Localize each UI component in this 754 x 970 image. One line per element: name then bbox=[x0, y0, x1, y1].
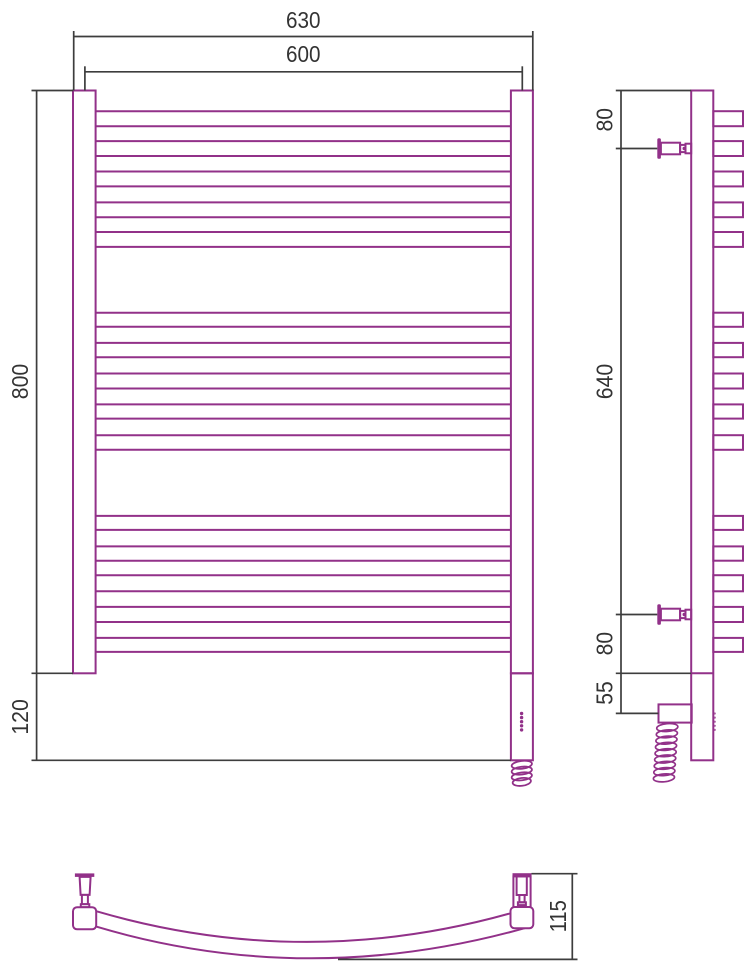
svg-text:640: 640 bbox=[592, 364, 618, 400]
svg-text:600: 600 bbox=[286, 41, 321, 67]
svg-text:55: 55 bbox=[592, 681, 618, 705]
svg-text:630: 630 bbox=[286, 7, 321, 33]
svg-text:115: 115 bbox=[545, 900, 571, 932]
svg-text:80: 80 bbox=[592, 108, 618, 132]
svg-text:80: 80 bbox=[592, 632, 618, 656]
svg-text:120: 120 bbox=[7, 699, 33, 735]
svg-text:800: 800 bbox=[7, 364, 33, 400]
